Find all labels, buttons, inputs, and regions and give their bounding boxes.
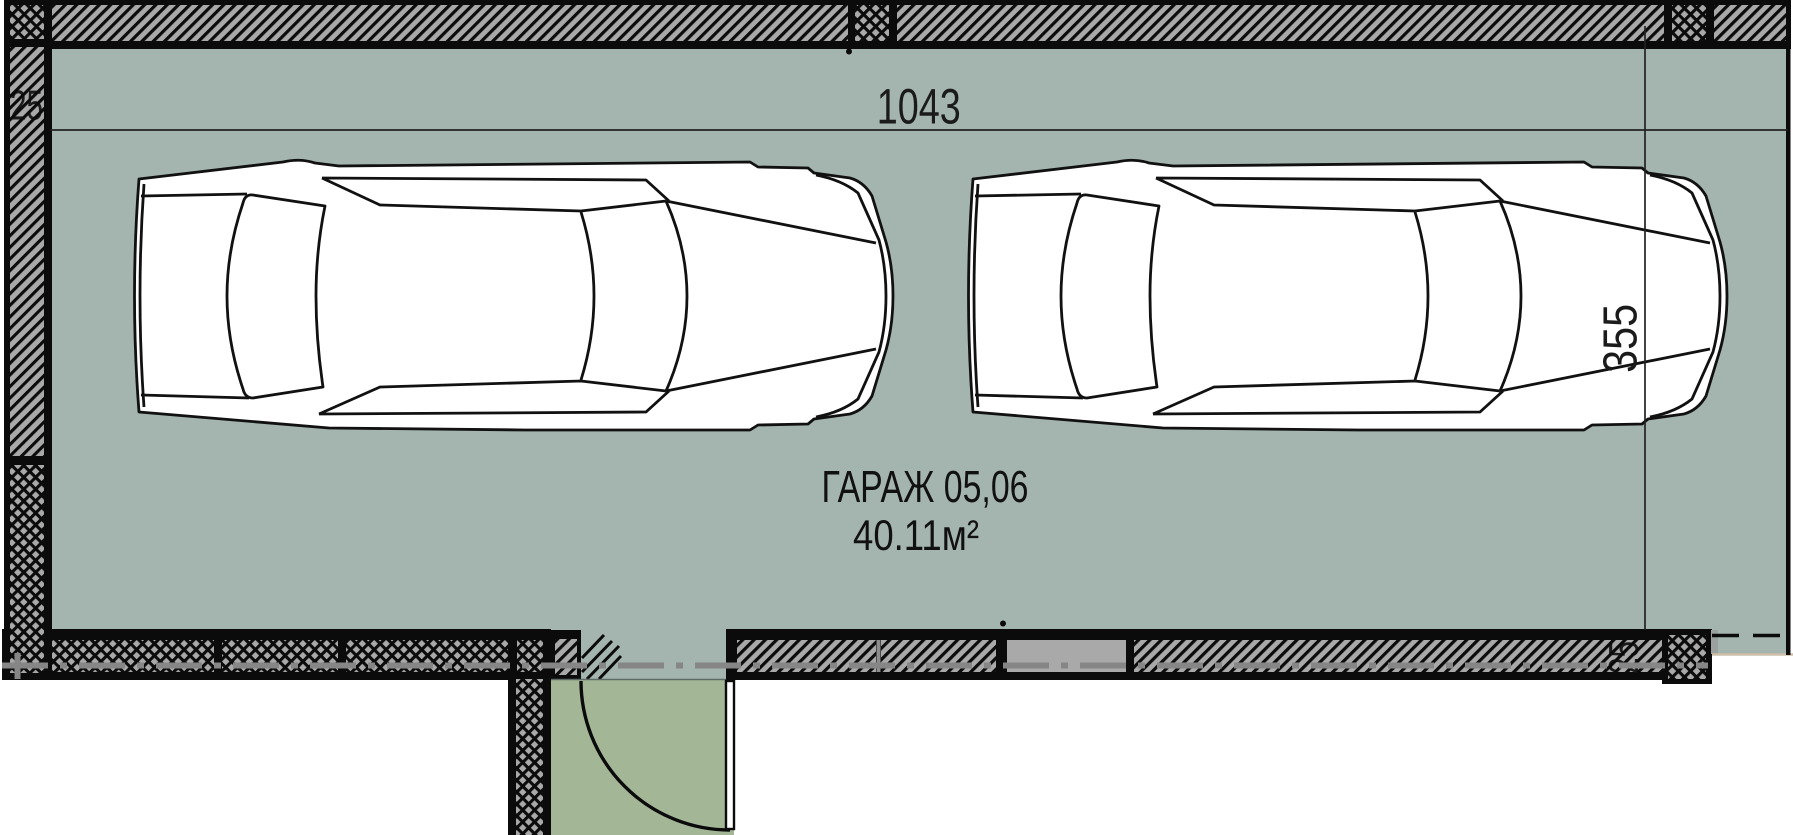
svg-text:355: 355 bbox=[1595, 304, 1648, 373]
svg-text:40.11м²: 40.11м² bbox=[853, 512, 979, 560]
svg-text:ГАРАЖ 05,06: ГАРАЖ 05,06 bbox=[822, 461, 1029, 512]
svg-text:1043: 1043 bbox=[877, 78, 961, 134]
